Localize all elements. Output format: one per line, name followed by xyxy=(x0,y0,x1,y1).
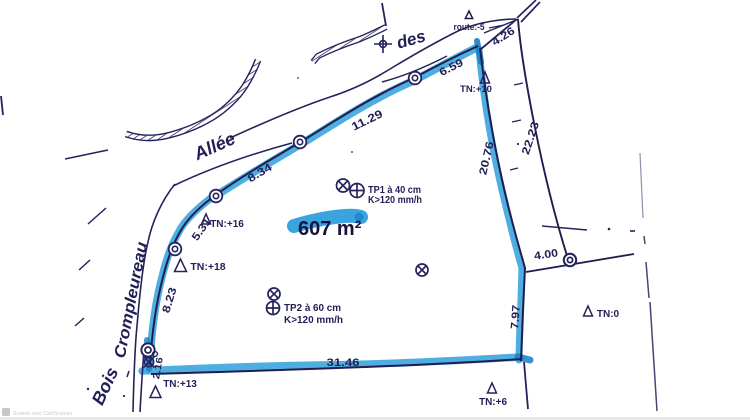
svg-text:K>120 mm/h: K>120 mm/h xyxy=(284,315,343,326)
svg-text:TN:0: TN:0 xyxy=(597,309,620,320)
svg-text:TP2 à 60 cm: TP2 à 60 cm xyxy=(284,303,341,314)
svg-text:K>120 mm/h: K>120 mm/h xyxy=(368,195,422,206)
svg-text:TN:+16: TN:+16 xyxy=(210,219,244,230)
svg-text:route:-5: route:-5 xyxy=(454,22,485,32)
svg-text:TN:+18: TN:+18 xyxy=(190,261,225,273)
svg-text:TN:+6: TN:+6 xyxy=(479,397,508,408)
svg-text:31.46: 31.46 xyxy=(327,357,360,369)
svg-text:7.97: 7.97 xyxy=(509,305,523,330)
svg-text:TN:+10: TN:+10 xyxy=(460,84,492,95)
svg-text:TN:+13: TN:+13 xyxy=(163,379,197,390)
svg-text:Scanné avec CamScanner: Scanné avec CamScanner xyxy=(13,411,73,417)
svg-text:607 m²: 607 m² xyxy=(298,218,362,240)
